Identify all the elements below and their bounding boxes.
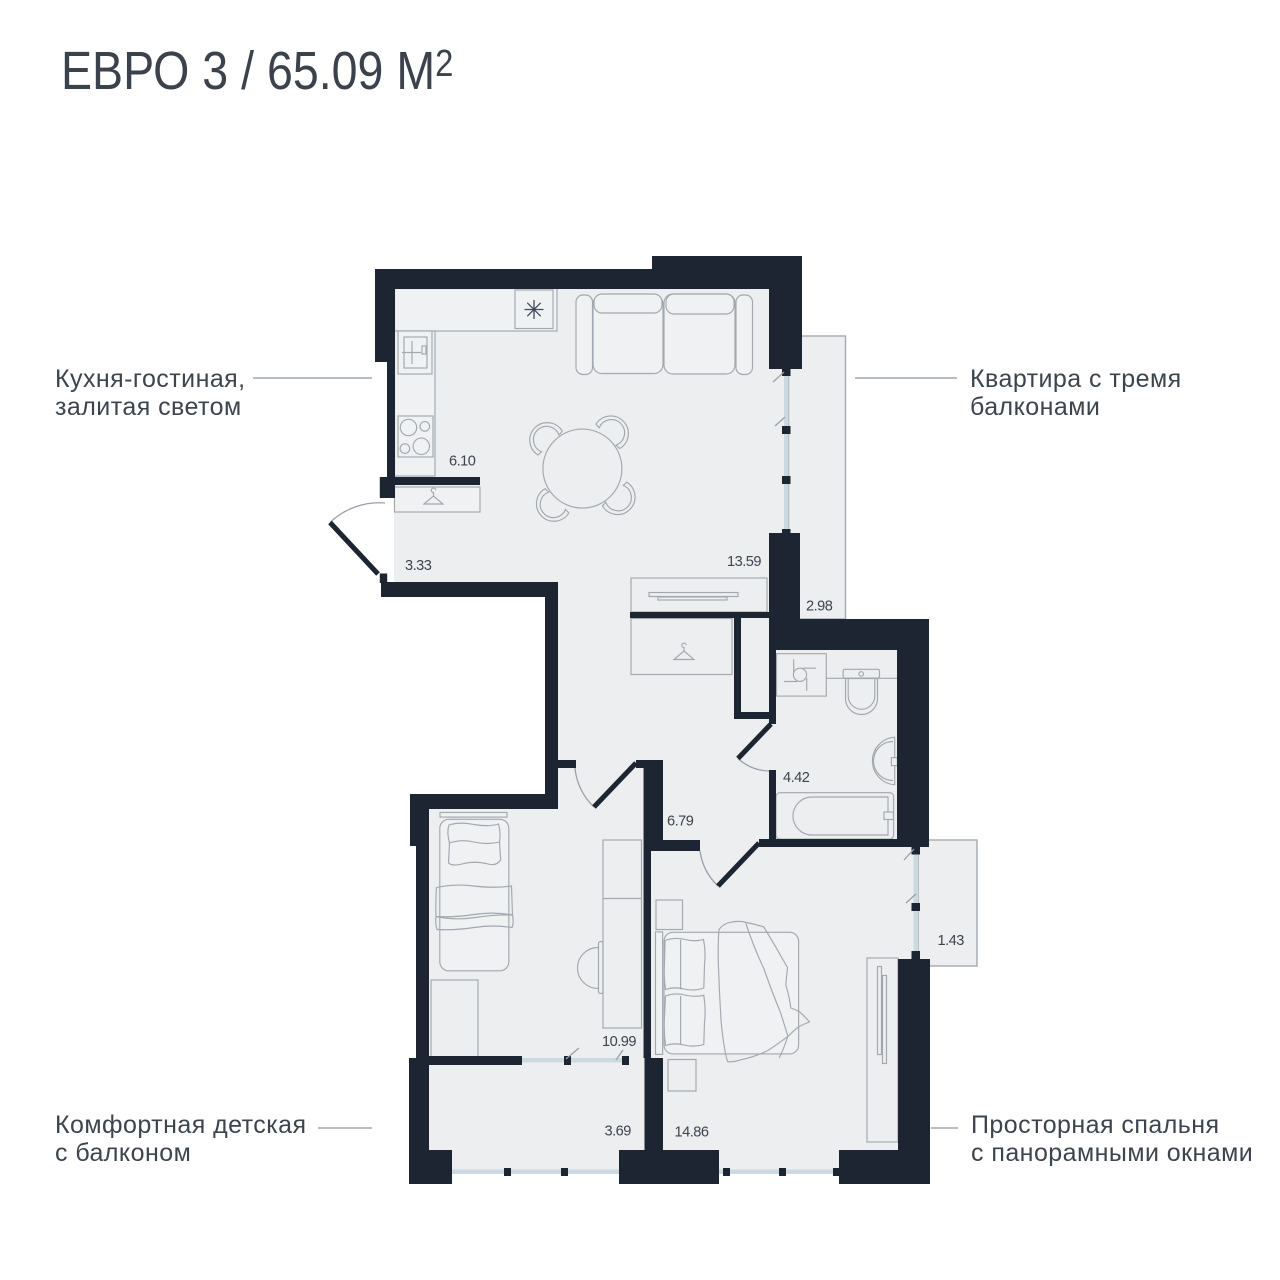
svg-text:4.42: 4.42 — [783, 770, 810, 786]
svg-text:10.99: 10.99 — [602, 1034, 636, 1050]
svg-text:6.79: 6.79 — [667, 814, 694, 830]
svg-text:6.10: 6.10 — [449, 454, 476, 470]
svg-text:1.43: 1.43 — [938, 933, 965, 949]
svg-text:2.98: 2.98 — [806, 599, 833, 615]
svg-text:13.59: 13.59 — [727, 554, 761, 570]
svg-text:14.86: 14.86 — [675, 1125, 709, 1141]
svg-text:3.33: 3.33 — [405, 558, 432, 574]
svg-text:3.69: 3.69 — [605, 1124, 632, 1140]
